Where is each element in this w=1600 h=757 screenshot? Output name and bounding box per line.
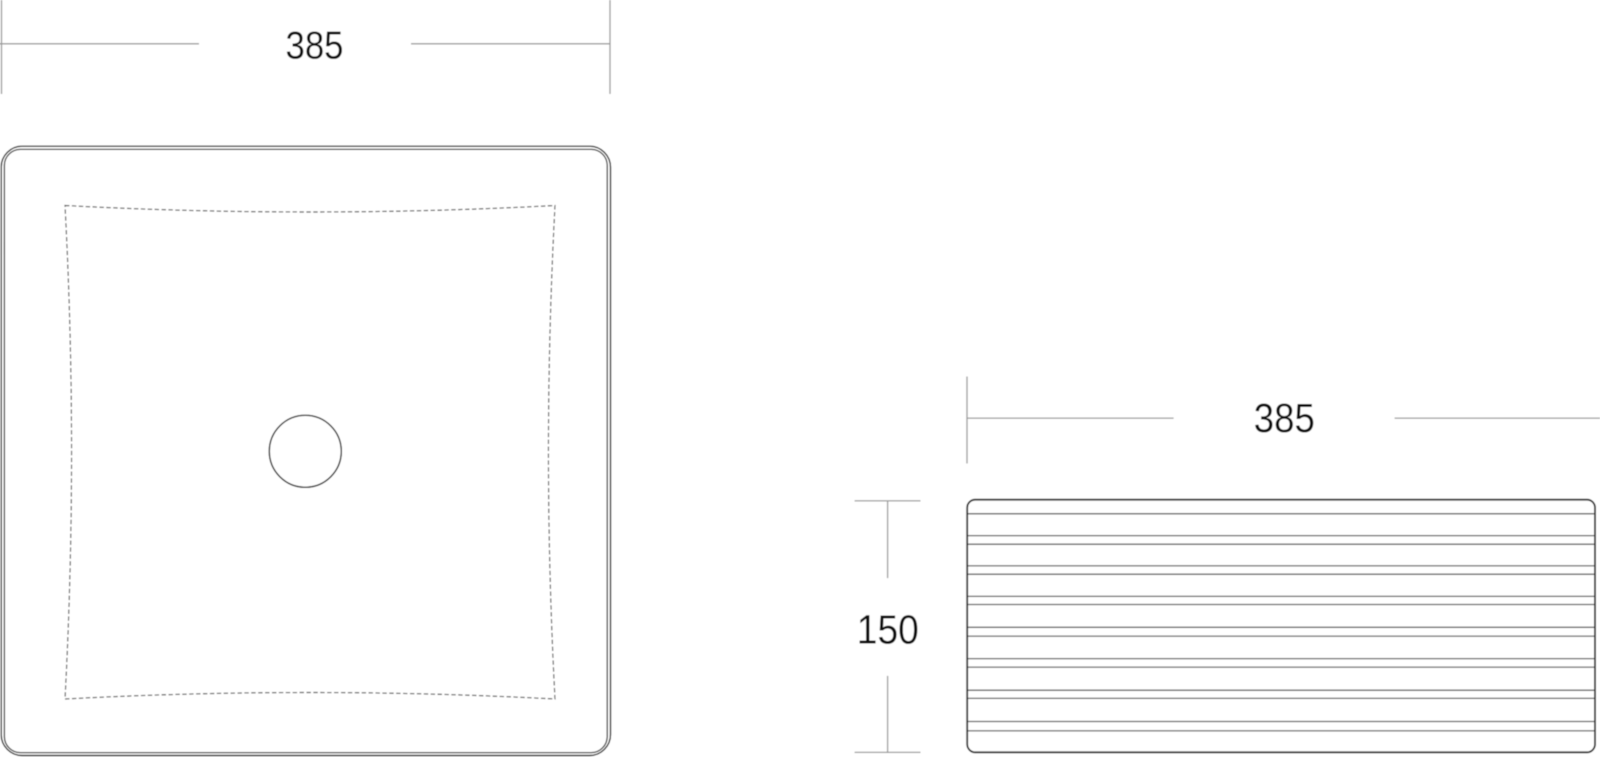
svg-text:150: 150 [857,607,919,653]
svg-text:385: 385 [1254,395,1315,441]
svg-text:385: 385 [286,25,344,68]
